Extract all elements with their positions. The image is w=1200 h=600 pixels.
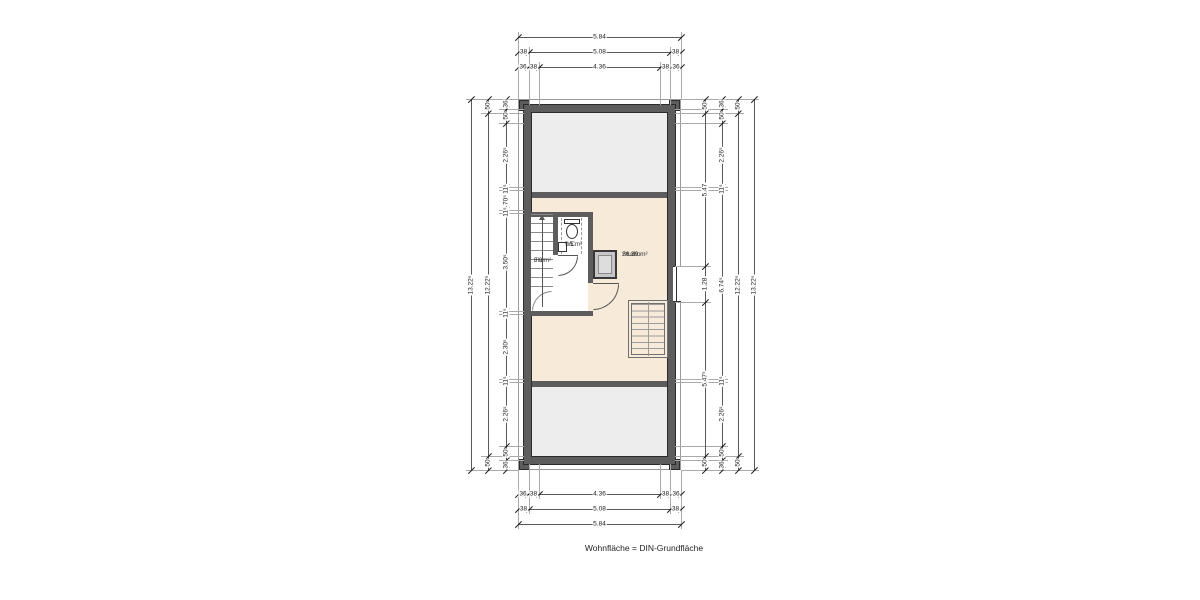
dim-label: 50: [735, 458, 742, 467]
dim-label: 50: [735, 101, 742, 110]
dim-label: 38: [519, 49, 528, 56]
dim-label: 2.26⁵: [719, 146, 726, 163]
dim-label: 5.08: [592, 49, 607, 56]
dim-label: 38: [671, 49, 680, 56]
dim-label: 38: [661, 491, 670, 498]
dim-label: 11⁵: [503, 375, 510, 386]
extension-line: [675, 113, 744, 114]
dim-label: 2.26⁵: [503, 146, 510, 163]
extension-line: [499, 109, 524, 110]
dim-label: 36: [518, 491, 527, 498]
dim-label: 12.22⁵: [735, 274, 742, 295]
dim-label: 1.28: [702, 277, 709, 292]
dim-label: 50: [702, 101, 709, 110]
dim-label: 38: [661, 64, 670, 71]
dim-label: 11⁵: [503, 307, 510, 318]
extension-line: [670, 47, 671, 105]
dim-label: 38: [529, 64, 538, 71]
dim-label: 2.30⁵: [503, 338, 510, 355]
dim-label: 50: [485, 101, 492, 110]
dim-label: 50: [702, 458, 709, 467]
extension-line: [681, 470, 682, 529]
dim-label: 4.36: [592, 64, 607, 71]
dim-label: 12.22⁵: [485, 274, 492, 295]
dim-label: 36: [503, 99, 510, 108]
dim-label: 2.26⁵: [503, 405, 510, 422]
dim-label: 50: [719, 448, 726, 457]
extension-line: [466, 99, 518, 100]
dim-label: 50: [719, 111, 726, 120]
dim-label: 3.50⁵: [503, 253, 510, 270]
dim-label: 5.47⁵: [702, 370, 709, 387]
dim-label: 36: [503, 460, 510, 469]
dim-label: 11⁵: [719, 375, 726, 386]
extension-line: [529, 47, 530, 105]
extension-line: [499, 446, 524, 447]
dim-label: 5.08: [592, 506, 607, 513]
dim-label: 36: [719, 99, 726, 108]
dim-label: 11⁵: [503, 183, 510, 194]
dim-label: 2.26⁵: [719, 405, 726, 422]
dim-label: 11⁵: [503, 206, 510, 217]
dim-label: 70⁵: [503, 194, 510, 206]
dim-label: 36: [671, 491, 680, 498]
dim-label: 6.74⁵: [719, 276, 726, 293]
dim-label: 11⁵: [719, 183, 726, 194]
dim-label: 5.84: [592, 34, 607, 41]
dim-label: 50: [503, 111, 510, 120]
dim-label: 13.22⁵: [751, 274, 758, 295]
dim-label: 13.22⁵: [468, 274, 475, 295]
dim-label: 50: [485, 458, 492, 467]
dim-label: 38: [519, 506, 528, 513]
extension-line: [466, 470, 518, 471]
dim-label: 4.36: [592, 491, 607, 498]
dimension-layer: 5.84385.083836384.36383636384.363836385.…: [0, 0, 1200, 600]
floor-plan: Flur 3.9 m² WC 1.5 m² Studio 26.39 m² Wo…: [0, 0, 1200, 600]
extension-line: [675, 456, 744, 457]
dim-label: 5.84: [592, 521, 607, 528]
extension-line: [518, 470, 519, 529]
dim-label: 36: [719, 460, 726, 469]
dim-label: 38: [671, 506, 680, 513]
dim-label: 36: [671, 64, 680, 71]
dim-label: 50: [503, 448, 510, 457]
dim-label: 5.47: [702, 182, 709, 197]
dim-label: 38: [529, 491, 538, 498]
dim-label: 36: [518, 64, 527, 71]
extension-line: [499, 123, 524, 124]
